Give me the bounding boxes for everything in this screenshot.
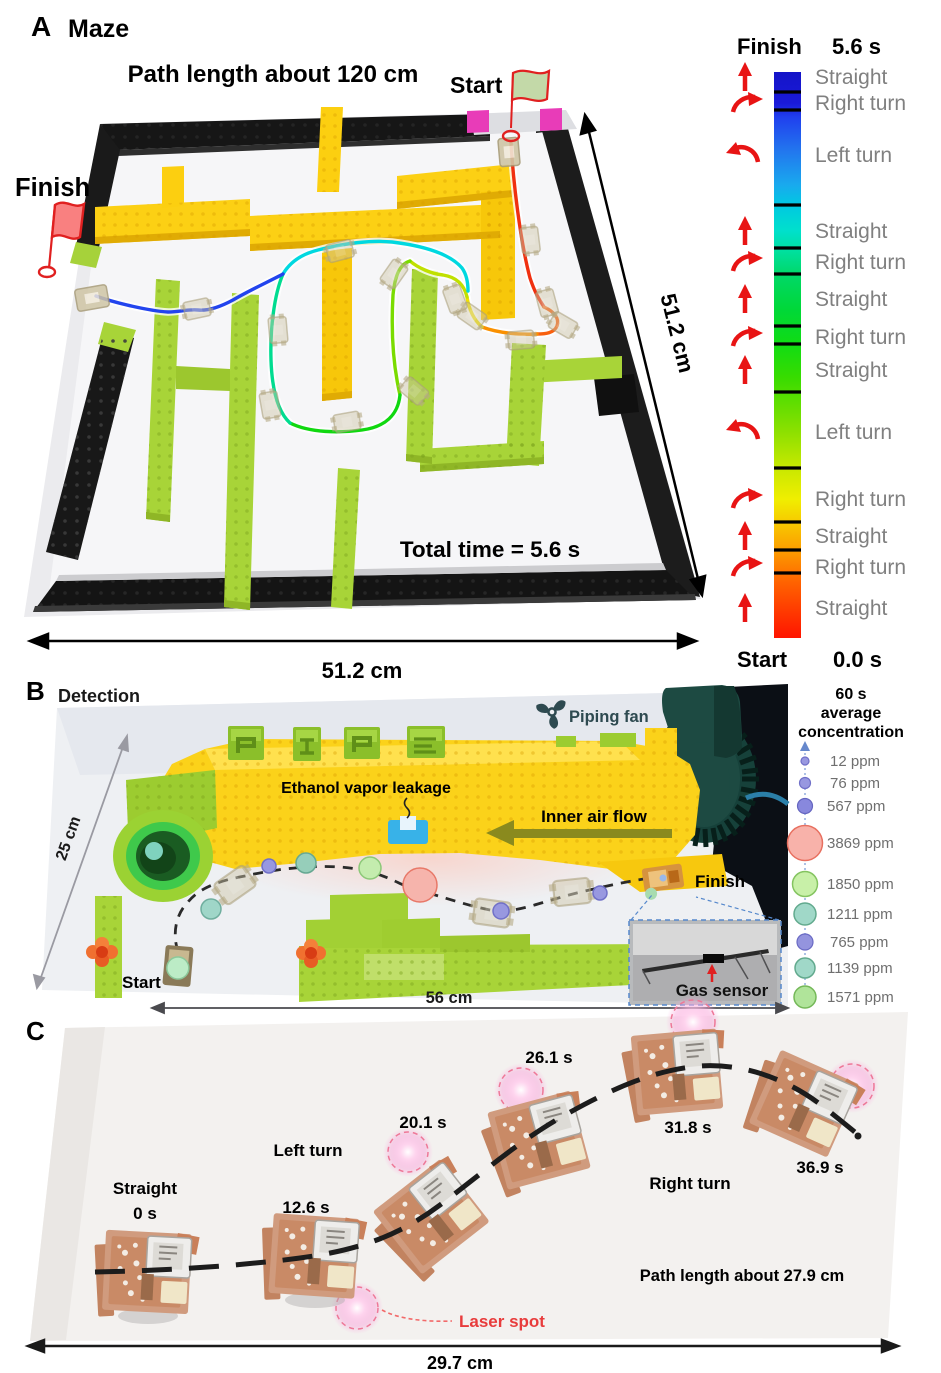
svg-text:0 s: 0 s (133, 1204, 157, 1223)
svg-text:Start: Start (737, 647, 788, 672)
svg-text:Start: Start (450, 72, 503, 98)
svg-text:12 ppm: 12 ppm (830, 753, 880, 770)
svg-text:26.1 s: 26.1 s (525, 1048, 572, 1067)
svg-text:Finish: Finish (737, 34, 802, 59)
svg-text:56 cm: 56 cm (426, 989, 473, 1007)
svg-text:concentration: concentration (798, 724, 904, 741)
svg-text:36.9 s: 36.9 s (796, 1158, 843, 1177)
svg-text:1139 ppm: 1139 ppm (827, 960, 893, 977)
svg-text:Straight: Straight (815, 288, 888, 311)
svg-text:60 s: 60 s (835, 686, 866, 703)
svg-text:Right turn: Right turn (815, 326, 906, 349)
svg-text:B: B (26, 676, 45, 706)
svg-text:Straight: Straight (815, 597, 888, 620)
svg-text:Ethanol vapor leakage: Ethanol vapor leakage (281, 780, 451, 797)
svg-text:Straight: Straight (815, 359, 888, 382)
svg-text:average: average (821, 705, 882, 722)
svg-text:C: C (26, 1016, 45, 1046)
svg-text:3869 ppm: 3869 ppm (827, 835, 894, 852)
svg-text:Path length about 27.9 cm: Path length about 27.9 cm (640, 1267, 844, 1285)
svg-text:31.8 s: 31.8 s (664, 1118, 711, 1137)
svg-text:0.0 s: 0.0 s (833, 647, 882, 672)
svg-text:Start: Start (122, 973, 161, 992)
svg-text:Left turn: Left turn (274, 1141, 343, 1160)
svg-text:Inner air flow: Inner air flow (541, 807, 648, 826)
svg-text:Left turn: Left turn (815, 421, 892, 444)
svg-text:1850 ppm: 1850 ppm (827, 876, 894, 893)
svg-text:29.7 cm: 29.7 cm (427, 1353, 493, 1373)
svg-text:76 ppm: 76 ppm (830, 775, 880, 792)
svg-text:Left turn: Left turn (815, 144, 892, 167)
svg-text:Straight: Straight (815, 220, 888, 243)
svg-text:Right turn: Right turn (815, 251, 906, 274)
svg-text:Finish: Finish (15, 174, 90, 202)
svg-text:12.6 s: 12.6 s (282, 1198, 329, 1217)
svg-text:Right turn: Right turn (815, 92, 906, 115)
svg-text:Right turn: Right turn (649, 1174, 730, 1193)
svg-text:567 ppm: 567 ppm (827, 798, 885, 815)
svg-text:Finish: Finish (695, 872, 745, 891)
svg-text:Straight: Straight (113, 1179, 178, 1198)
svg-text:Detection: Detection (58, 686, 140, 706)
svg-text:Maze: Maze (68, 15, 129, 43)
svg-text:Laser spot: Laser spot (459, 1312, 545, 1331)
svg-text:Right turn: Right turn (815, 488, 906, 511)
svg-text:765 ppm: 765 ppm (830, 934, 888, 951)
svg-text:Piping fan: Piping fan (569, 708, 649, 726)
svg-text:Total time = 5.6 s: Total time = 5.6 s (400, 537, 580, 562)
svg-text:Path length about 120 cm: Path length about 120 cm (128, 61, 419, 88)
svg-text:Straight: Straight (815, 66, 888, 89)
svg-text:5.6 s: 5.6 s (832, 34, 881, 59)
svg-text:51.2 cm: 51.2 cm (322, 658, 403, 683)
svg-text:1571 ppm: 1571 ppm (827, 989, 894, 1006)
svg-text:Straight: Straight (815, 525, 888, 548)
svg-text:1211 ppm: 1211 ppm (827, 906, 893, 923)
svg-text:20.1 s: 20.1 s (399, 1113, 446, 1132)
svg-text:A: A (31, 11, 51, 42)
svg-text:Right turn: Right turn (815, 556, 906, 579)
